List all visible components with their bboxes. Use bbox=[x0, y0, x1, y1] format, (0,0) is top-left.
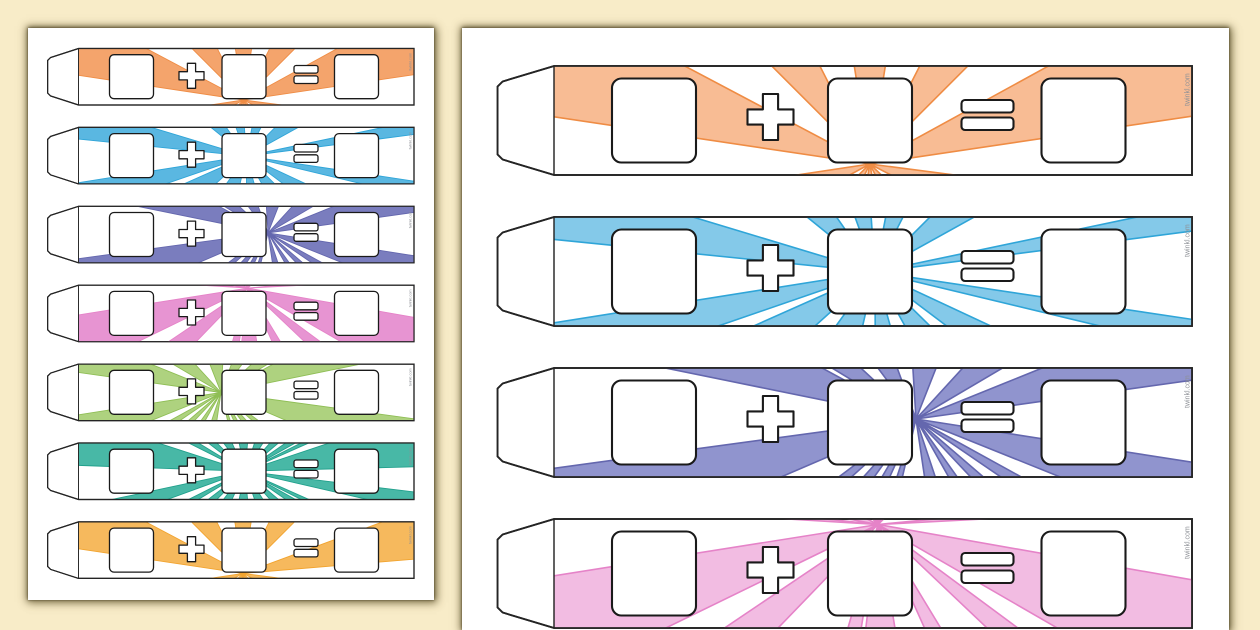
svg-text:twinkl.com: twinkl.com bbox=[1184, 73, 1191, 106]
svg-text:twinkl.com: twinkl.com bbox=[409, 447, 413, 465]
svg-text:twinkl.com: twinkl.com bbox=[409, 211, 413, 229]
svg-text:twinkl.com: twinkl.com bbox=[1184, 526, 1191, 559]
svg-text:twinkl.com: twinkl.com bbox=[409, 53, 413, 71]
svg-text:twinkl.com: twinkl.com bbox=[409, 289, 413, 307]
svg-text:twinkl.com: twinkl.com bbox=[409, 526, 413, 544]
svg-text:twinkl.com: twinkl.com bbox=[1184, 224, 1191, 257]
svg-text:twinkl.com: twinkl.com bbox=[1184, 375, 1191, 408]
svg-text:twinkl.com: twinkl.com bbox=[409, 132, 413, 150]
svg-text:twinkl.com: twinkl.com bbox=[409, 368, 413, 386]
